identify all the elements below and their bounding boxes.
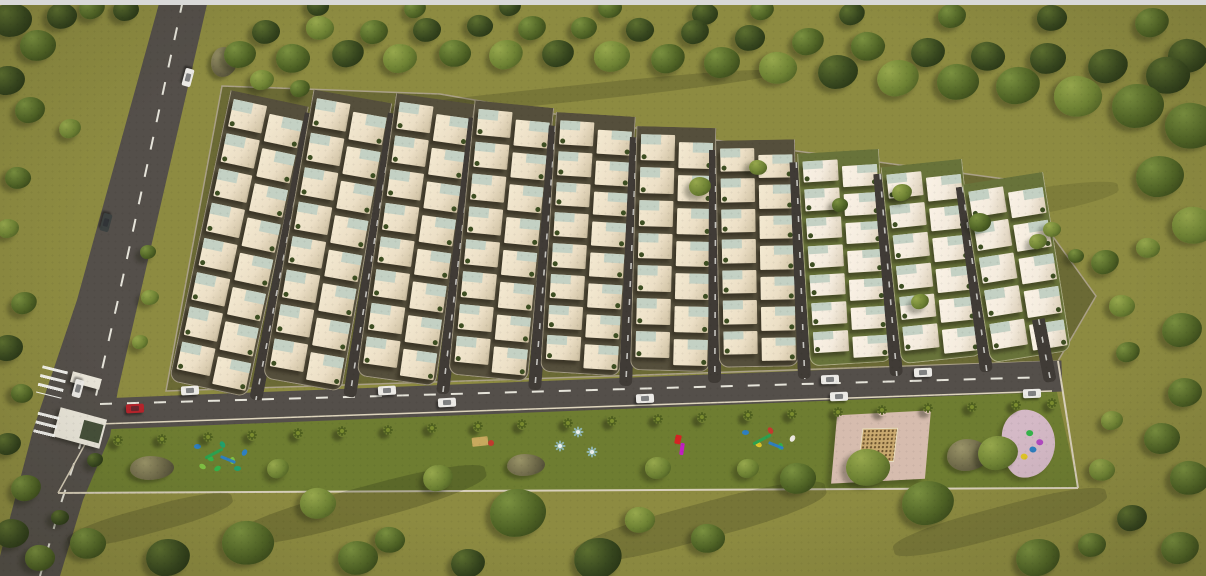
tree [910,37,945,68]
tree [383,43,418,73]
tree [1168,377,1202,406]
tree [86,452,104,468]
tree [850,30,887,62]
tree [421,463,455,493]
tree [252,20,281,45]
tree [571,533,626,576]
tree [901,480,955,527]
tree [0,334,24,361]
tree [275,42,312,74]
tree [266,457,291,479]
tree [465,13,494,39]
tree [1086,47,1130,86]
tree [680,19,710,46]
tree [224,41,256,69]
tree [1029,42,1066,74]
tree [330,38,365,69]
tree [1134,236,1161,260]
tree [1036,4,1069,32]
tree [977,435,1018,470]
tree [9,473,42,502]
tree [0,65,26,96]
tree [748,159,769,177]
tree [1112,84,1164,128]
tree [359,19,389,45]
tree [68,525,108,560]
tree [779,461,818,495]
tree [1144,422,1181,453]
tree [1067,248,1085,263]
tree [1014,536,1063,576]
tree [437,39,472,70]
tree [649,41,688,75]
tree [304,14,336,42]
aerial-render-scene [0,0,1206,576]
tree [487,37,526,72]
tree [51,510,70,526]
tree [936,63,980,102]
tree [0,218,19,238]
tree [220,518,277,568]
tree [1101,410,1124,430]
tree [450,548,485,576]
tree [58,117,83,139]
tree [734,24,765,51]
tree [891,183,913,202]
tree [1028,233,1048,251]
tree [703,46,740,78]
tree [1087,457,1116,483]
tree [4,165,32,190]
tree [1136,155,1185,197]
tree [250,69,275,90]
tree [969,212,992,232]
tree [1168,459,1206,497]
tree [1162,100,1206,153]
tree [818,55,859,90]
tree [790,26,825,57]
tree [140,245,156,259]
tree [844,447,892,489]
tree [1169,204,1206,248]
tree [1089,248,1121,276]
tree [910,293,931,311]
tree [1133,5,1171,39]
tree [516,14,547,41]
tree [737,458,759,477]
tree [46,2,78,30]
tree [131,334,149,350]
vegetation-layer [0,0,1206,576]
tree [757,49,799,86]
tree [994,65,1041,106]
tree [644,456,671,479]
tree [1108,293,1136,318]
tree [571,16,598,39]
tree [623,505,656,534]
tree [1161,312,1202,347]
tree [9,382,34,405]
tree [1160,531,1200,566]
tree [14,96,46,124]
tree [413,18,442,43]
tree [969,39,1008,74]
tree [593,40,631,72]
tree [490,489,547,538]
window-top-bar [0,0,1206,5]
tree [0,432,22,455]
tree [689,176,711,195]
tree [145,538,192,576]
tree [1114,340,1141,364]
tree [289,78,312,98]
tree [1078,533,1106,557]
tree [689,522,726,555]
tree [624,16,655,43]
tree [141,290,159,306]
tree [373,525,407,556]
tree [1116,504,1149,532]
tree [298,485,338,520]
tree [0,518,29,547]
tree [337,540,378,575]
tree [832,198,848,212]
tree [938,4,967,29]
tree [541,39,575,69]
tree [19,28,57,61]
tree [9,290,38,316]
tree [24,544,57,572]
